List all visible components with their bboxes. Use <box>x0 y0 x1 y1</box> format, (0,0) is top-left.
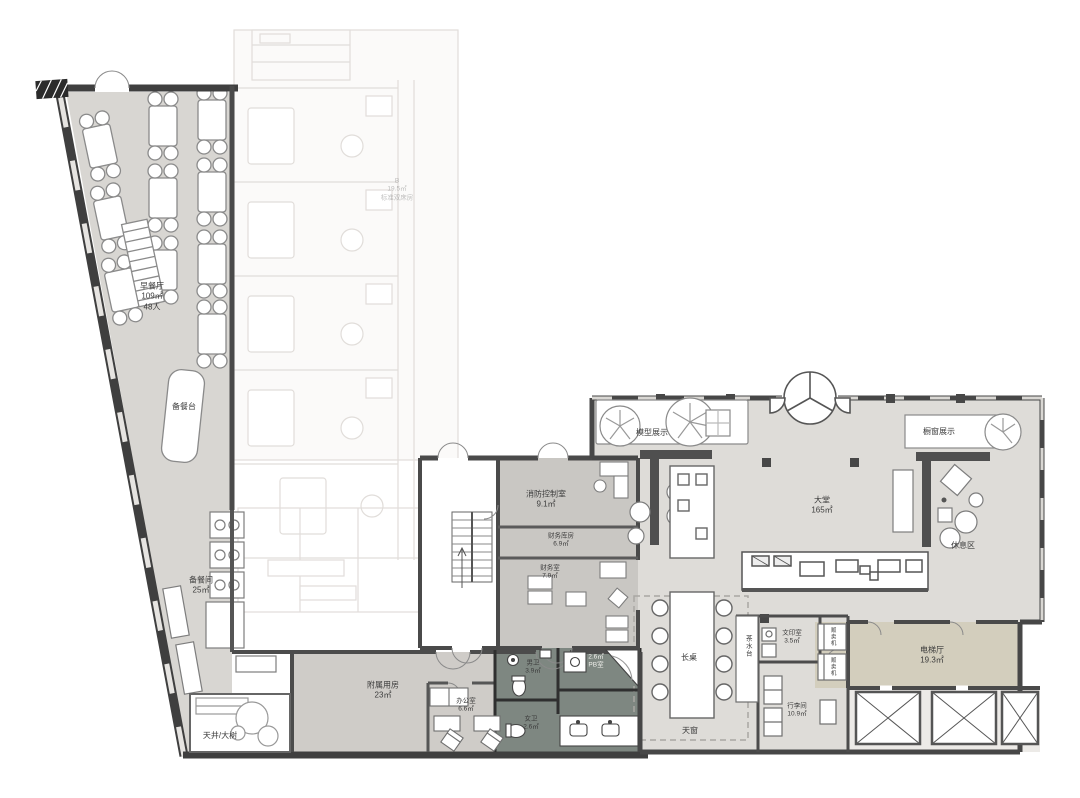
model-display-area <box>596 398 748 446</box>
front-desk <box>742 552 928 590</box>
label-vending-machine-2: 贩卖机 <box>828 657 835 677</box>
room-label-mens-toilet: 男卫 3.9㎡ <box>525 660 541 677</box>
room-label-finance-storage: 财务库房 6.9㎡ <box>548 533 574 550</box>
room-label-pb-room: 2.6㎡ PB室 <box>588 654 604 671</box>
room-label-womens-toilet: 女卫 2.6㎡ <box>523 716 539 733</box>
elevator-shafts <box>856 688 1038 744</box>
room-label-model-display: 模型展示 <box>636 428 668 438</box>
room-label-elevator-hall: 电梯厅 19.3㎡ <box>920 646 944 667</box>
floor-plan-canvas <box>0 0 1080 798</box>
room-label-luggage: 行李间 10.9㎡ <box>787 703 807 720</box>
room-label-long-table: 长桌 <box>681 653 697 663</box>
label-vending-machine-1: 贩卖机 <box>828 627 835 647</box>
room-label-office: 办公室 6.6㎡ <box>456 698 476 715</box>
floor-plan: 早餐厅 109㎡ 48人 备餐台 备餐间 25㎡ 附属用房 23㎡ 办公室 6.… <box>0 0 1080 798</box>
room-label-skylight: 天窗 <box>682 726 698 736</box>
room-label-lounge: 休息区 <box>951 541 975 551</box>
room-label-pantry: 备餐间 25㎡ <box>189 576 213 597</box>
room-label-print-room: 文印室 3.5㎡ <box>782 630 802 647</box>
room-label-finance-office: 财务室 7.9㎡ <box>540 565 560 582</box>
room-label-breakfast: 早餐厅 109㎡ 48人 <box>140 281 164 312</box>
room-label-ancillary: 附属用房 23㎡ <box>367 681 399 702</box>
room-label-fire-control: 消防控制室 9.1㎡ <box>526 490 566 511</box>
room-label-lobby: 大堂 165㎡ <box>811 496 832 517</box>
room-label-window-display: 橱窗展示 <box>923 427 955 437</box>
room-label-courtyard: 天井/大树 <box>203 731 237 741</box>
ghost-room-label: B 19.5㎡ 标准双床房 <box>381 177 414 202</box>
room-label-tea-station: 茶水台 <box>743 635 751 658</box>
room-label-serving-counter: 备餐台 <box>172 402 196 412</box>
wall-corner-hatch <box>35 79 68 99</box>
